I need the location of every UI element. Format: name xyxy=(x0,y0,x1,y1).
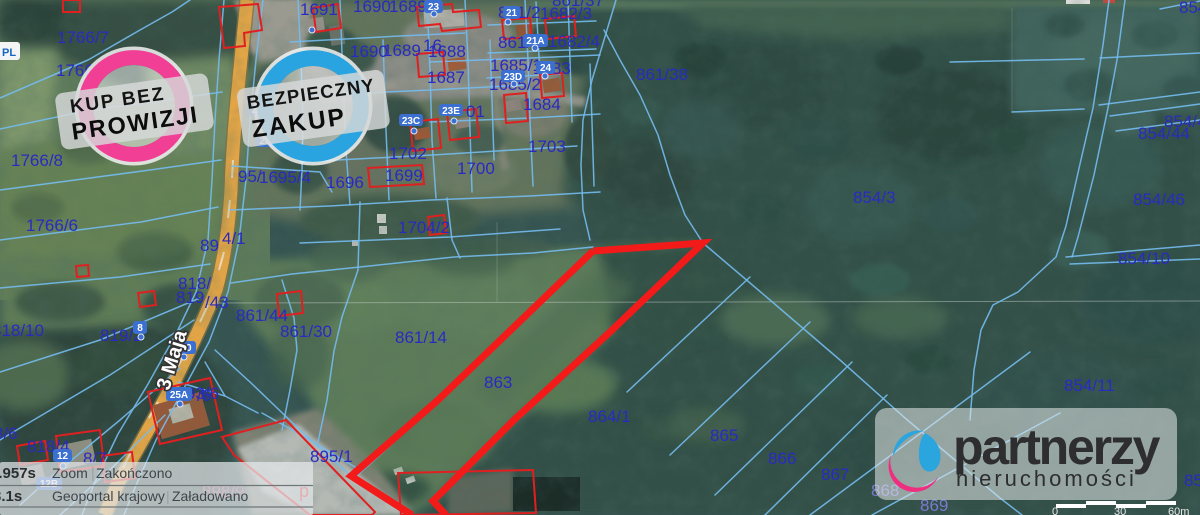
svg-text:60m: 60m xyxy=(1168,506,1189,515)
svg-text:Zakończono: Zakończono xyxy=(96,465,172,481)
svg-text:5.957s: 5.957s xyxy=(0,465,36,482)
svg-text:|: | xyxy=(91,466,95,482)
svg-text:Zoom: Zoom xyxy=(52,465,88,481)
svg-text:PL: PL xyxy=(2,47,16,59)
svg-text:nieruchomości: nieruchomości xyxy=(956,466,1137,491)
svg-text:30: 30 xyxy=(1114,506,1126,515)
svg-text:3.1s: 3.1s xyxy=(0,488,22,505)
svg-text:0: 0 xyxy=(1052,506,1058,515)
svg-text:|: | xyxy=(166,488,170,504)
svg-text:3 Maja: 3 Maja xyxy=(153,327,192,393)
svg-text:Załadowano: Załadowano xyxy=(172,488,248,504)
svg-text:Geoportal krajowy: Geoportal krajowy xyxy=(52,488,165,504)
